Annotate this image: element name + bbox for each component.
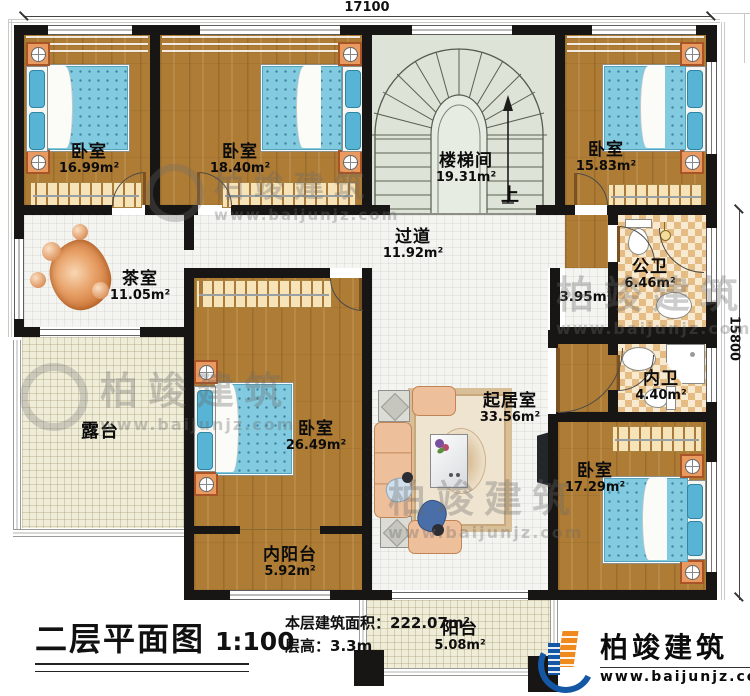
wardrobe-rail [615,439,699,441]
tearoom-stone-pebble [30,272,46,288]
room-area: 3.95m² [559,290,612,305]
room-label-hallway: 过道 11.92m² [383,228,443,262]
brand-logo-icon [536,627,592,685]
nightstand [680,42,704,66]
side-table [378,390,410,422]
lamp-icon [31,155,46,170]
floor-plan: 17100 15800 [0,0,750,696]
wardrobe-rail [225,195,353,197]
wall-segment [320,526,362,534]
pillow [687,112,703,150]
brand-name: 柏竣建筑 [600,626,750,666]
floor-vestibule [565,215,608,268]
pillow [29,70,45,108]
bed-sheet [216,384,239,472]
side-table-top [383,519,411,547]
room-name: 过道 [383,228,443,247]
up-text: 上 [501,186,519,206]
nightstand [338,150,362,174]
lamp-icon [685,565,700,580]
window [706,228,717,302]
lamp-icon [199,365,214,380]
brand-logo: 柏竣建筑 www.baijunjz.com [536,626,750,685]
wall-segment [607,205,717,215]
room-label-bedroom2: 卧室 18.40m² [210,143,270,177]
wall-segment [184,268,330,278]
lamp-icon [199,477,214,492]
room-name: 露台 [81,422,119,442]
room-area: 18.40m² [210,162,270,177]
door-leaf [143,172,146,205]
outline-line [8,22,720,23]
wall-segment [14,327,40,337]
staircase [372,35,555,215]
room-name: 公卫 [624,258,675,277]
room-name: 内阳台 [263,546,317,565]
table-knob [449,473,453,477]
room-area: 6.46m² [624,277,675,292]
bed-sheet [640,66,665,148]
nightstand [194,360,218,384]
nightstand [680,150,704,174]
wall-segment [556,412,717,422]
door-leaf [359,278,362,310]
nightstand [26,150,50,174]
room-label-bedroom5: 卧室 17.29m² [565,462,625,496]
table-knob [456,473,460,477]
pillow [687,521,703,556]
room-label-bedroom1: 卧室 16.99m² [59,143,119,177]
nightstand [680,560,704,584]
nightstand [680,454,704,478]
pillow [197,432,213,470]
outline-line [724,22,725,600]
window [412,25,512,35]
floor-height-label: 层高： [285,637,330,655]
shower-drain [690,352,695,357]
window [48,25,132,35]
logo-building-blue [548,643,560,675]
wall-segment [184,215,194,250]
door-leaf [197,172,200,205]
wall-segment [555,25,565,215]
wall-segment [608,390,618,412]
wall-segment [608,215,618,225]
room-area: 19.31m² [436,171,496,186]
pillow [197,390,213,428]
sliding-door [40,329,140,336]
floor-height-value: 3.3m [330,637,372,655]
room-label-bedroom4: 卧室 26.49m² [286,420,346,454]
tearoom-stone-pebble [72,224,88,240]
room-area: 26.49m² [286,439,346,454]
terrace-railing [13,340,21,537]
pillow [345,112,361,150]
nightstand [338,42,362,66]
window [706,62,717,154]
dimension-line-top [24,16,712,17]
room-label-inner-balcony: 内阳台 5.92m² [263,546,317,580]
room-label-living: 起居室 33.56m² [480,392,540,426]
plan-scale: 1:100 [215,627,295,656]
room-area: 11.05m² [110,289,170,304]
side-table-top [381,393,409,421]
person-head [402,472,413,483]
room-name: 茶室 [110,270,170,289]
wall-segment [184,268,194,600]
room-name: 楼梯间 [436,152,496,171]
wall-segment [548,414,558,600]
dimension-line-right [739,210,740,600]
stair-edge-line [390,213,536,215]
build-info: 本层建筑面积：222.07m² 层高：3.3m [285,612,470,659]
window-sill [162,36,360,53]
title-underline [35,663,249,672]
toilet-tank [625,219,652,228]
room-name: 卧室 [565,462,625,481]
wall-segment [556,327,717,344]
wall-segment [330,590,392,600]
room-name: 卧室 [59,143,119,162]
room-area: 16.99m² [59,162,119,177]
stair-up-label: 上 [501,186,519,206]
wall-segment [14,205,112,215]
terrace-railing [13,529,185,537]
tearoom-stone-pebble [42,242,61,261]
room-name: 卧室 [576,141,636,160]
brand-site: www.baijunjz.com [600,667,750,685]
dimension-right-value: 15800 [727,309,742,369]
nightstand [26,42,50,66]
wall-segment [150,25,160,215]
room-area: 15.83m² [576,160,636,175]
window [592,25,696,35]
pillow [345,70,361,108]
room-area: 33.56m² [480,411,540,426]
bed-sheet [48,66,73,148]
wardrobe [196,280,332,308]
window [706,462,717,572]
bed-sheet [642,478,667,560]
room-label-private-bath: 内卫 4.40m² [635,370,686,404]
room-area: 11.92m² [383,247,443,262]
room-area: 4.40m² [635,389,686,404]
outline-line [744,13,745,63]
pillow [29,112,45,150]
tearoom-stone-pebble [92,282,109,299]
dimension-top-value: 17100 [332,0,402,15]
room-name: 起居室 [480,392,540,411]
lamp-icon [685,459,700,474]
wall-segment [362,25,372,215]
room-label-public-bath: 公卫 6.46m² [624,258,675,292]
pillow [687,484,703,519]
inner-balcony-threshold [240,529,320,530]
wall-segment [184,590,230,600]
nightstand [194,472,218,496]
room-name: 卧室 [286,420,346,439]
wardrobe-rail [611,196,701,198]
outline-line [11,19,12,337]
outline-line [8,19,9,337]
wall-segment [362,268,372,600]
door-leaf [556,348,560,412]
room-label-terrace: 露台 [81,422,119,442]
room-label-tearoom: 茶室 11.05m² [110,270,170,304]
sofa [374,422,412,518]
wall-segment [194,526,240,534]
room-label-bedroom3: 卧室 15.83m² [576,141,636,175]
title-block: 二层平面图 1:100 [35,614,295,672]
build-area-label: 本层建筑面积： [285,614,390,632]
window [14,239,24,319]
door-leaf [574,173,577,205]
lamp-icon [685,155,700,170]
outline-line [8,19,720,20]
wardrobe [612,426,702,452]
window [200,25,340,35]
person-head [432,524,444,536]
room-label-stairwell: 楼梯间 19.31m² [436,152,496,186]
lamp-icon [685,47,700,62]
wall-segment [548,330,558,348]
pillow [687,70,703,108]
armchair [412,386,456,416]
door-leaf [617,226,620,262]
lamp-icon [343,47,358,62]
window [230,590,330,600]
wardrobe-rail [199,294,329,296]
room-name: 卧室 [210,143,270,162]
build-area-value: 222.07m² [390,614,470,632]
coffee-table [430,434,468,488]
bed-sheet [296,66,321,148]
outline-line [721,22,722,600]
room-area: 17.29m² [565,481,625,496]
lamp-icon [31,47,46,62]
window [706,348,717,402]
plan-title: 二层平面图 [35,614,205,660]
room-label-nook: 3.95m² [559,290,612,305]
room-name: 内卫 [635,370,686,389]
room-area: 5.92m² [263,565,317,580]
sink [656,292,692,319]
sliding-door [392,592,528,599]
lamp-icon [343,155,358,170]
